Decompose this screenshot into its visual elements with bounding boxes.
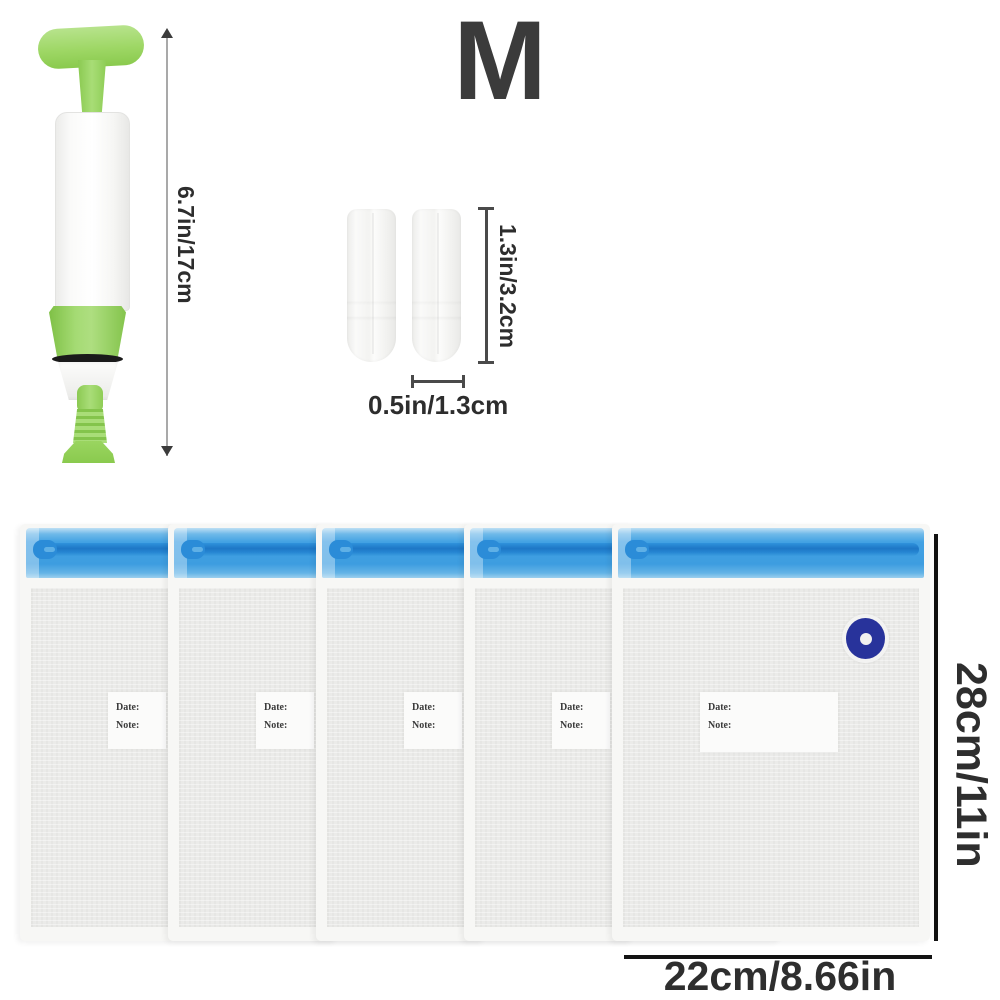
bag-height-dimension-label: 28cm/11in bbox=[946, 545, 995, 985]
sealing-clip bbox=[412, 209, 461, 362]
date-field-label: Date: bbox=[412, 702, 462, 713]
date-field-label: Date: bbox=[116, 702, 166, 713]
pump-height-dimension-value: 6.7in/17cm bbox=[172, 186, 199, 304]
dimension-cap bbox=[411, 375, 414, 388]
clip-width-dimension-label: 0.5in/1.3cm bbox=[368, 390, 508, 421]
pump-suction-base bbox=[62, 441, 115, 463]
bag-zipper-slider-icon bbox=[477, 540, 501, 559]
pump-height-dimension-label: 6.7in/17cm bbox=[172, 130, 199, 360]
air-valve-icon bbox=[842, 614, 889, 663]
bag-zipper-slider-icon bbox=[625, 540, 649, 559]
pump-green-sleeve bbox=[49, 306, 126, 359]
sealing-clip bbox=[347, 209, 396, 362]
bag-write-label: Date: Note: bbox=[404, 692, 462, 749]
pump-cylinder bbox=[55, 112, 130, 311]
clip-height-dimension-label: 1.3in/3.2cm bbox=[494, 208, 521, 364]
note-field-label: Note: bbox=[412, 720, 462, 731]
dimension-cap bbox=[478, 207, 494, 210]
bag-zipper-track bbox=[632, 543, 919, 556]
clip-height-dimension-line bbox=[485, 208, 488, 364]
bag-seal-top bbox=[618, 528, 924, 578]
bag-write-label: Date: Note: bbox=[552, 692, 610, 749]
date-field-label: Date: bbox=[708, 702, 838, 713]
date-field-label: Date: bbox=[560, 702, 610, 713]
note-field-label: Note: bbox=[560, 720, 610, 731]
bag-zipper-slider-icon bbox=[33, 540, 57, 559]
bag-height-dimension-value: 28cm/11in bbox=[946, 662, 995, 868]
bag-zipper-slider-icon bbox=[181, 540, 205, 559]
pump-ribbed-neck bbox=[73, 409, 107, 443]
bag-write-label: Date: Note: bbox=[108, 692, 166, 749]
pump-nozzle-cap bbox=[77, 385, 103, 411]
note-field-label: Note: bbox=[264, 720, 314, 731]
note-field-label: Note: bbox=[116, 720, 166, 731]
air-valve-hole bbox=[860, 633, 872, 645]
bag-write-label: Date: Note: bbox=[256, 692, 314, 749]
arrow-up-icon bbox=[161, 28, 173, 38]
note-field-label: Note: bbox=[708, 720, 838, 731]
bag-write-label: Date: Note: bbox=[700, 692, 838, 752]
bag-width-dimension-label: 22cm/8.66in bbox=[598, 956, 962, 997]
arrow-down-icon bbox=[161, 446, 173, 456]
clip-height-dimension-value: 1.3in/3.2cm bbox=[494, 224, 521, 348]
product-dimension-image: M 6.7in/17cm 1.3in/3.2cm 0.5in/1.3cm bbox=[0, 0, 1000, 1000]
clip-width-dimension-line bbox=[412, 380, 465, 383]
vacuum-bag: Date: Note: bbox=[612, 524, 930, 941]
date-field-label: Date: bbox=[264, 702, 314, 713]
size-label: M bbox=[0, 5, 1000, 117]
dimension-cap bbox=[462, 375, 465, 388]
bag-height-dimension-line bbox=[934, 534, 938, 941]
bag-zipper-slider-icon bbox=[329, 540, 353, 559]
pump-height-dimension-line bbox=[166, 33, 168, 456]
dimension-cap bbox=[478, 361, 494, 364]
